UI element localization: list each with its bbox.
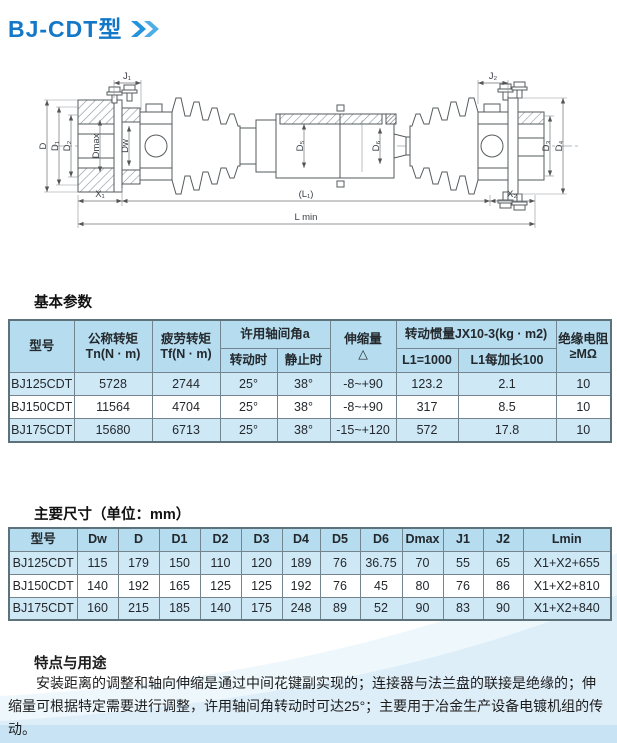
double-chevron-icon — [130, 20, 162, 38]
page-header: BJ-CDT型 — [8, 10, 162, 44]
column-header-l1000: L1=1000 — [396, 349, 458, 373]
dim-label-x2: X₂ — [507, 189, 517, 200]
column-header: J1 — [443, 528, 483, 551]
table-cell: 317 — [396, 396, 458, 419]
table-cell: 140 — [200, 597, 241, 620]
table-cell: 125 — [200, 574, 241, 597]
section-title-basic-params: 基本参数 — [34, 291, 92, 312]
table-cell: X1+X2+840 — [523, 597, 611, 620]
table-cell: 80 — [402, 574, 443, 597]
table-cell: BJ125CDT — [9, 551, 77, 574]
table-cell: 8.5 — [458, 396, 556, 419]
header-line: 疲劳转矩 — [154, 332, 219, 347]
column-header: J2 — [483, 528, 523, 551]
table-cell: 38° — [277, 419, 330, 442]
dim-label-d1: D₁ — [50, 141, 61, 151]
column-header: Lmin — [523, 528, 611, 551]
table-row: BJ125CDT 115 179 150 110 120 189 76 36.7… — [9, 551, 611, 574]
table-row: BJ125CDT 5728 2744 25° 38° -8~+90 123.2 … — [9, 373, 611, 396]
table-cell: 125 — [241, 574, 282, 597]
table-cell: 185 — [159, 597, 200, 620]
dim-label-d: D — [38, 142, 49, 149]
right-bellows-boot — [410, 98, 478, 194]
table-row: BJ150CDT 140 192 165 125 125 192 76 45 8… — [9, 574, 611, 597]
grease-nipple-bottom — [337, 181, 344, 187]
table-cell: BJ150CDT — [9, 396, 74, 419]
table-cell: 38° — [277, 373, 330, 396]
basic-params-table: 型号 公称转矩 Tn(N · m) 疲劳转矩 Tf(N · m) 许用轴间角a … — [8, 319, 612, 443]
table-cell: BJ125CDT — [9, 373, 74, 396]
header-line: Tn(N · m) — [76, 347, 151, 362]
dim-label-d6: D₆ — [371, 140, 382, 151]
grease-nipple-top — [337, 105, 344, 111]
dim-label-j1: J₁ — [123, 71, 131, 82]
table-cell: 165 — [159, 574, 200, 597]
column-header-per100: L1每加长100 — [458, 349, 556, 373]
table-cell: 76 — [320, 574, 360, 597]
table-cell: 86 — [483, 574, 523, 597]
table-cell: 10 — [556, 419, 611, 442]
table-cell: 189 — [282, 551, 320, 574]
table-cell: 45 — [360, 574, 402, 597]
center-spline-shaft — [240, 105, 412, 187]
column-header-static: 静止时 — [277, 349, 330, 373]
table-cell: 215 — [118, 597, 159, 620]
dim-label-lmin: L min — [295, 212, 318, 223]
page-title: BJ-CDT型 — [8, 10, 122, 44]
table-cell: 115 — [77, 551, 118, 574]
table-row: BJ175CDT 160 215 185 140 175 248 89 52 9… — [9, 597, 611, 620]
column-header-model: 型号 — [9, 320, 74, 373]
table-cell: 25° — [220, 373, 277, 396]
table-cell: 52 — [360, 597, 402, 620]
column-header: D5 — [320, 528, 360, 551]
column-header-inertia: 转动惯量JX10-3(kg · m2) — [396, 320, 556, 349]
table-cell: 10 — [556, 373, 611, 396]
table-cell: 192 — [118, 574, 159, 597]
column-header-allowable-angle: 许用轴间角a — [220, 320, 330, 349]
table-cell: 248 — [282, 597, 320, 620]
table-cell: 38° — [277, 396, 330, 419]
column-header-insulation-resistance: 绝缘电阻 ≥MΩ — [556, 320, 611, 373]
table-cell: 17.8 — [458, 419, 556, 442]
features-body: 安装距离的调整和轴向伸缩是通过中间花键副实现的；连接器与法兰盘的联接是绝缘的；伸… — [8, 672, 607, 741]
table-cell: 15680 — [74, 419, 152, 442]
column-header-nominal-torque: 公称转矩 Tn(N · m) — [74, 320, 152, 373]
catalog-page: BJ-CDT型 — [0, 0, 617, 743]
header-line: Tf(N · m) — [154, 347, 219, 362]
column-header: D4 — [282, 528, 320, 551]
header-line: △ — [332, 347, 395, 362]
table-cell: 2.1 — [458, 373, 556, 396]
right-bearing — [478, 104, 508, 180]
dim-label-dw: Dw — [120, 139, 131, 153]
left-bellows-boot — [172, 98, 240, 194]
table-cell: 572 — [396, 419, 458, 442]
left-bearing — [140, 104, 172, 180]
table-cell: 25° — [220, 396, 277, 419]
table-cell: 36.75 — [360, 551, 402, 574]
column-header: D1 — [159, 528, 200, 551]
table-cell: 83 — [443, 597, 483, 620]
table-cell: -8~+90 — [330, 373, 396, 396]
section-title-dimensions: 主要尺寸（单位：mm） — [34, 503, 190, 524]
table-cell: -15~+120 — [330, 419, 396, 442]
dim-label-d5: D₅ — [295, 140, 306, 151]
header-line: 伸缩量 — [332, 332, 395, 347]
table-cell: 150 — [159, 551, 200, 574]
column-header: Dw — [77, 528, 118, 551]
table-cell: 4704 — [152, 396, 220, 419]
dim-label-d3: D₃ — [541, 141, 552, 152]
features-title: 特点与用途 — [34, 652, 107, 673]
table-cell: 179 — [118, 551, 159, 574]
table-cell: 55 — [443, 551, 483, 574]
table-cell: 70 — [402, 551, 443, 574]
table-cell: X1+X2+655 — [523, 551, 611, 574]
header-line: ≥MΩ — [558, 347, 610, 362]
table-row: BJ175CDT 15680 6713 25° 38° -15~+120 572… — [9, 419, 611, 442]
seal-block — [386, 114, 396, 124]
dimensions-table: 型号 Dw D D1 D2 D3 D4 D5 D6 Dmax J1 J2 Lmi… — [8, 527, 612, 621]
dim-label-d2: D₂ — [62, 140, 73, 151]
table-cell: 192 — [282, 574, 320, 597]
table-row: BJ150CDT 11564 4704 25° 38° -8~+90 317 8… — [9, 396, 611, 419]
column-header-rotating: 转动时 — [220, 349, 277, 373]
table-cell: BJ150CDT — [9, 574, 77, 597]
table-cell: 90 — [483, 597, 523, 620]
column-header-fatigue-torque: 疲劳转矩 Tf(N · m) — [152, 320, 220, 373]
column-header: Dmax — [402, 528, 443, 551]
dim-label-dmax: Dmax — [91, 133, 102, 158]
table-cell: 175 — [241, 597, 282, 620]
table-cell: 2744 — [152, 373, 220, 396]
header-line: 公称转矩 — [76, 332, 151, 347]
column-header: D — [118, 528, 159, 551]
table-cell: 5728 — [74, 373, 152, 396]
table-cell: BJ175CDT — [9, 597, 77, 620]
dim-label-l1: (L₁) — [299, 189, 314, 200]
header-line: 绝缘电阻 — [558, 332, 610, 347]
table-cell: 110 — [200, 551, 241, 574]
table-cell: 76 — [320, 551, 360, 574]
table-cell: 25° — [220, 419, 277, 442]
table-cell: 123.2 — [396, 373, 458, 396]
technical-drawing: D D₁ D₂ Dmax Dw J₁ J₂ D₅ D₆ D₃ D₄ X₁ (L₁… — [0, 54, 617, 242]
right-bolts-top — [498, 82, 527, 100]
table-cell: 6713 — [152, 419, 220, 442]
table-cell: 120 — [241, 551, 282, 574]
table-cell: 160 — [77, 597, 118, 620]
table-cell: 11564 — [74, 396, 152, 419]
dim-label-d4: D₄ — [554, 141, 565, 152]
column-header: D6 — [360, 528, 402, 551]
column-header-stretch: 伸缩量 △ — [330, 320, 396, 373]
table-cell: -8~+90 — [330, 396, 396, 419]
table-cell: BJ175CDT — [9, 419, 74, 442]
column-header: D2 — [200, 528, 241, 551]
table-cell: 89 — [320, 597, 360, 620]
table-cell: 65 — [483, 551, 523, 574]
table-cell: 10 — [556, 396, 611, 419]
table-cell: X1+X2+810 — [523, 574, 611, 597]
dim-label-j2: J₂ — [489, 71, 498, 82]
column-header: D3 — [241, 528, 282, 551]
dim-label-x1: X₁ — [95, 189, 105, 200]
table-cell: 90 — [402, 597, 443, 620]
table-cell: 140 — [77, 574, 118, 597]
table-cell: 76 — [443, 574, 483, 597]
column-header: 型号 — [9, 528, 77, 551]
